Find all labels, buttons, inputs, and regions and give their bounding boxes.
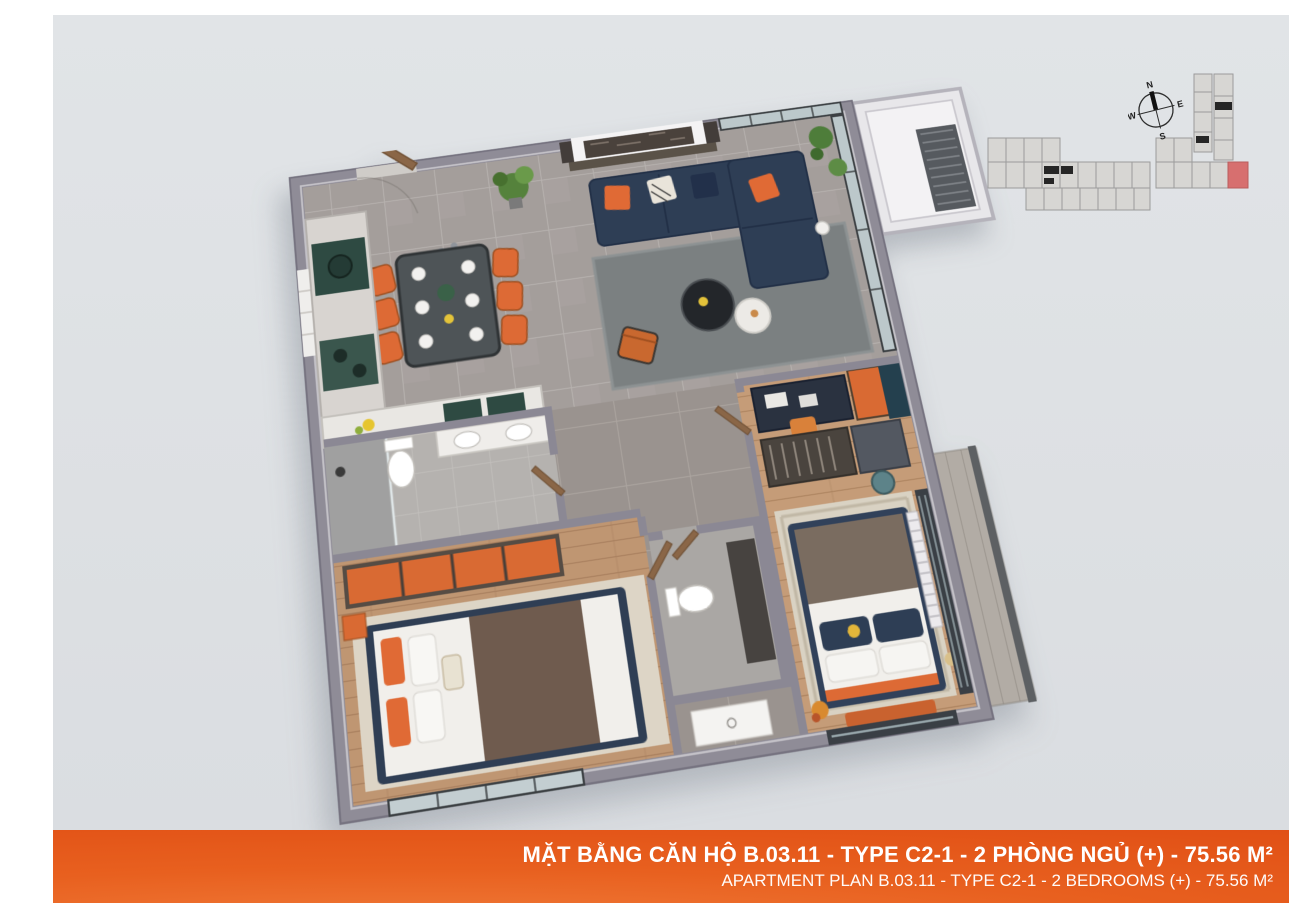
dresser-dark: [851, 420, 910, 474]
compass-east-label: E: [1176, 98, 1184, 109]
pillow-orange: [604, 186, 630, 210]
title-banner: MẶT BẰNG CĂN HỘ B.03.11 - TYPE C2-1 - 2 …: [53, 830, 1289, 903]
compass-south-label: S: [1158, 131, 1166, 142]
compass-needle: [1151, 92, 1156, 110]
pillow-navy: [690, 172, 719, 199]
highlighted-unit: [1228, 162, 1248, 188]
nightstand-orange: [342, 613, 367, 641]
plan-title-english: APARTMENT PLAN B.03.11 - TYPE C2-1 - 2 B…: [721, 871, 1273, 891]
building-key-plan: [986, 72, 1262, 212]
compass-west-label: W: [1128, 110, 1138, 122]
dining-table: [395, 244, 500, 368]
compass-icon: N E S W: [1128, 78, 1184, 142]
kitchen-hob: [319, 333, 378, 391]
plan-title-vietnamese: MẶT BẰNG CĂN HỘ B.03.11 - TYPE C2-1 - 2 …: [522, 842, 1273, 867]
pillow-pattern: [441, 654, 464, 690]
shower-area: [324, 435, 398, 564]
bed-blanket: [469, 600, 600, 761]
pillow-orange: [380, 636, 405, 686]
page: N E S W MẶT BẰNG CĂN HỘ B.03.11 - TYPE C…: [0, 0, 1307, 924]
compass-north-label: N: [1145, 79, 1154, 90]
